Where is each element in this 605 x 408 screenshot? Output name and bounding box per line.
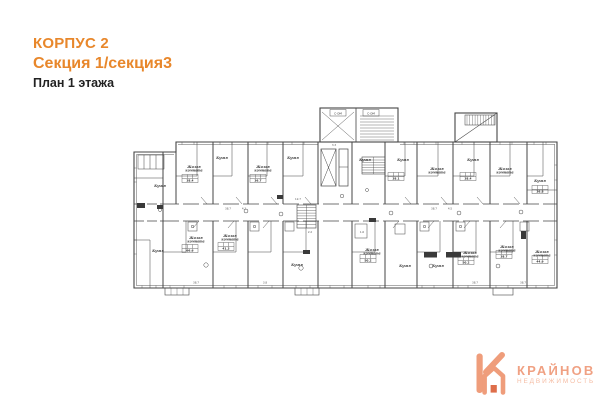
outer-walls — [134, 108, 557, 288]
plan-tag: С-ОМ — [363, 110, 379, 117]
room-label: Кухня — [153, 184, 166, 188]
dimension-label: 38.7 — [472, 281, 478, 285]
bathroom-boxes — [188, 222, 529, 238]
room-label: Кухня — [466, 158, 479, 162]
entrance-vestibule — [322, 108, 394, 142]
room-label: Кухня — [290, 263, 303, 267]
svg-text:36.8: 36.8 — [536, 190, 543, 194]
dimension-label: 4.3 — [242, 207, 247, 211]
bottom-porches — [165, 288, 513, 295]
area-table: 38.4 — [182, 175, 198, 183]
room-label: Кухня — [431, 264, 444, 268]
dimension-label: 4.5 — [448, 207, 453, 211]
logo-name: КРАЙНОВ — [517, 364, 595, 377]
svg-text:50.2: 50.2 — [364, 259, 371, 263]
logo-subtitle: НЕДВИЖИМОСТЬ — [517, 379, 595, 385]
dimension-label: 3.3 — [332, 143, 337, 147]
dimension-label: 3.8 — [263, 281, 268, 285]
svg-text:С-ОМ: С-ОМ — [367, 112, 375, 116]
svg-text:С-ОМ: С-ОМ — [334, 112, 342, 116]
area-table: 66.6 — [182, 245, 198, 253]
room-label: Кухня — [151, 249, 164, 253]
plan-tag: С-ОМ — [330, 110, 346, 117]
external-stair — [455, 113, 497, 142]
room-label: Кухня — [215, 156, 228, 160]
staircase-lower — [297, 205, 316, 228]
filled-fixtures — [137, 195, 526, 258]
dimension-label: 38.7 — [225, 207, 231, 211]
agency-logo: КРАЙНОВ НЕДВИЖИМОСТЬ — [476, 351, 595, 395]
room-label: Жилаякомната — [187, 236, 204, 243]
window-marks — [134, 142, 557, 288]
svg-text:36.7: 36.7 — [254, 179, 261, 183]
svg-text:44.9: 44.9 — [536, 260, 543, 264]
area-table: 41.3 — [218, 243, 234, 251]
room-label: Кухня — [533, 179, 546, 183]
room-label: Жилаякомната — [428, 167, 445, 174]
dimension-label: 38.7 — [431, 207, 437, 211]
room-label: Жилаякомната — [363, 248, 380, 255]
room-label: Кухня — [398, 264, 411, 268]
corridor-walls — [134, 204, 557, 221]
svg-text:38.7: 38.7 — [500, 255, 507, 259]
dimension-label: 2.2 — [308, 230, 313, 234]
dimension-label: 1.6 — [360, 230, 365, 234]
room-label: Жилаякомната — [221, 234, 238, 241]
svg-text:38.4: 38.4 — [186, 179, 193, 183]
area-table: 36.8 — [532, 186, 548, 194]
svg-text:50.2: 50.2 — [462, 261, 469, 265]
room-label: Жилаякомната — [496, 167, 513, 174]
area-table: 36.7 — [250, 175, 266, 183]
svg-text:38.4: 38.4 — [464, 177, 471, 181]
room-label: Жилаякомната — [498, 245, 515, 252]
door-leaves — [193, 197, 520, 228]
floor-plan: КухняЖилаякомнатаКухняЖилаякомнатаКухняК… — [0, 0, 605, 408]
floor-plan-drawing: КухняЖилаякомнатаКухняЖилаякомнатаКухняК… — [0, 0, 605, 403]
room-label: Кухня — [358, 158, 371, 162]
area-table: 38.4 — [460, 173, 476, 181]
svg-text:66.6: 66.6 — [186, 249, 193, 253]
room-label: Кухня — [396, 158, 409, 162]
unit-walls — [163, 142, 527, 288]
area-table: 38.1 — [388, 173, 404, 181]
dimension-label: 12.7 — [295, 197, 301, 201]
room-label: Жилаякомната — [461, 251, 478, 258]
elevator-shaft — [321, 149, 348, 186]
dimension-label: 38.7 — [520, 281, 526, 285]
k-house-icon — [476, 351, 506, 395]
svg-text:41.3: 41.3 — [222, 247, 229, 251]
room-label: Жилаякомната — [254, 165, 271, 172]
plan-labels: КухняЖилаякомнатаКухняЖилаякомнатаКухняК… — [151, 110, 550, 285]
room-label: Жилаякомната — [185, 165, 202, 172]
dimension-label: 38.7 — [193, 281, 199, 285]
svg-text:38.1: 38.1 — [392, 177, 399, 181]
room-label: Кухня — [286, 156, 299, 160]
room-partitions — [134, 142, 557, 288]
area-table: 50.2 — [360, 255, 376, 263]
